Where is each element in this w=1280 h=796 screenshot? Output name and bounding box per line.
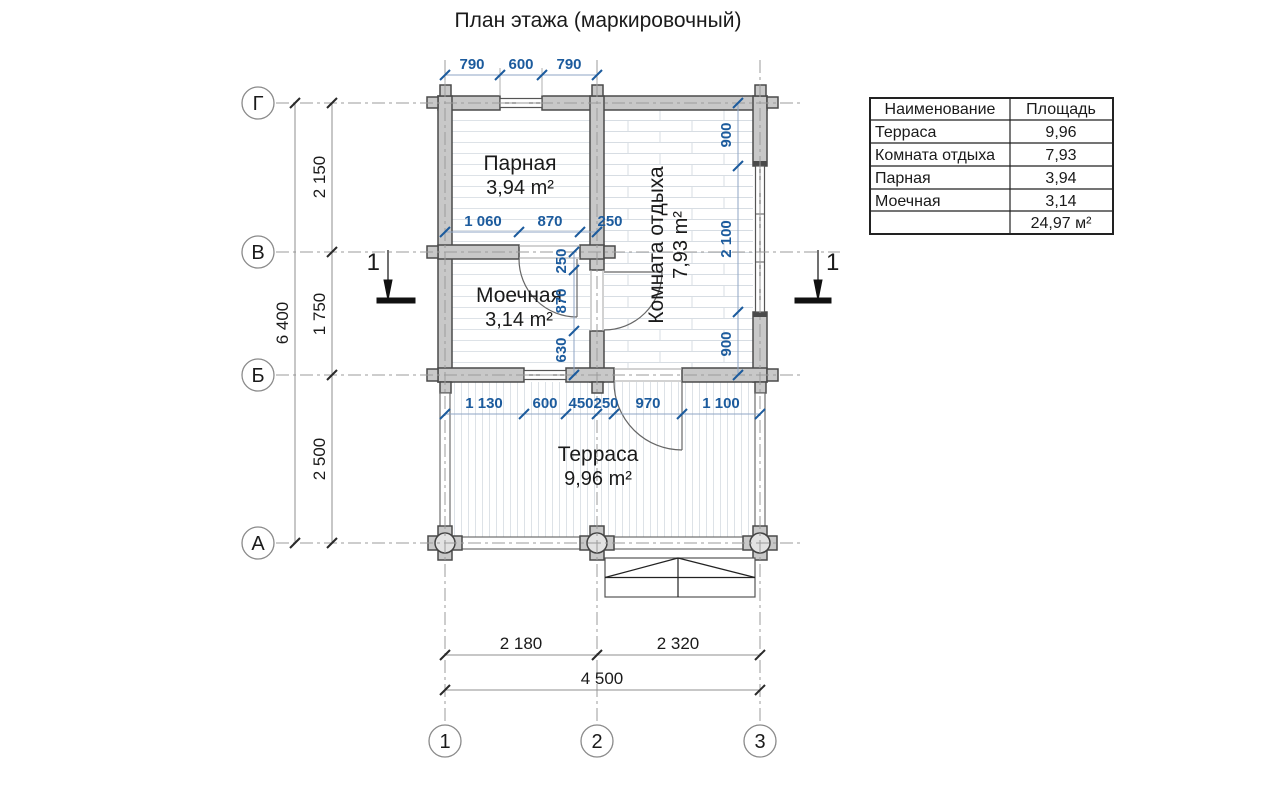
- room-area-komnata: 7,93 m²: [670, 211, 692, 279]
- dim-value: 1 130: [465, 395, 503, 412]
- table-cell-area: 9,96: [1045, 124, 1076, 141]
- table-cell-name: Терраса: [875, 124, 936, 141]
- axis-col-label: 3: [754, 731, 765, 753]
- dim-value: 1 750: [310, 293, 329, 336]
- axis-col-label: 2: [591, 731, 602, 753]
- table-cell-area: 3,94: [1045, 170, 1076, 187]
- dim-value: 2 180: [500, 634, 543, 653]
- dim-value: 900: [718, 331, 735, 356]
- table-cell-name: Моечная: [875, 193, 941, 210]
- axis-col-label: 1: [439, 731, 450, 753]
- dim-bottom-chain: 2 180 2 320: [440, 634, 765, 660]
- table-cell-name: Комната отдыха: [875, 147, 995, 164]
- axis-row-label: Г: [253, 93, 264, 115]
- dim-value: 790: [556, 56, 581, 73]
- dim-value: 2 320: [657, 634, 700, 653]
- room-area-terrasa: 9,96 m²: [564, 468, 632, 490]
- section-mark-left: 1: [367, 249, 415, 303]
- table-cell-area: 7,93: [1045, 147, 1076, 164]
- dim-value: 790: [459, 56, 484, 73]
- room-area-moechnaya: 3,14 m²: [485, 309, 553, 331]
- room-name-moechnaya: Моечная: [476, 284, 562, 307]
- section-label: 1: [367, 249, 380, 276]
- dim-value: 250: [553, 248, 570, 273]
- dim-value: 600: [532, 395, 557, 412]
- dim-value: 630: [553, 337, 570, 362]
- section-mark-right: 1: [795, 249, 839, 303]
- table-header-area: Площадь: [1026, 101, 1096, 118]
- room-name-terrasa: Терраса: [558, 443, 639, 466]
- areas-table: Наименование Площадь Терраса 9,96 Комнат…: [870, 98, 1113, 234]
- dim-value: 6 400: [273, 302, 292, 345]
- table-header-name: Наименование: [885, 101, 996, 118]
- dim-value: 2 100: [718, 220, 735, 258]
- dim-value: 1 100: [702, 395, 740, 412]
- dim-left-overall: 6 400: [273, 98, 300, 548]
- dim-bottom-overall: 4 500: [440, 669, 765, 695]
- dim-value: 900: [718, 122, 735, 147]
- axis-row-label: Б: [251, 365, 264, 387]
- dim-value: 250: [597, 213, 622, 230]
- dim-value: 450: [568, 395, 593, 412]
- dim-value: 970: [635, 395, 660, 412]
- dim-value: 250: [593, 395, 618, 412]
- room-name-parnaya: Парная: [483, 152, 556, 175]
- dim-value: 870: [537, 213, 562, 230]
- dim-value: 600: [508, 56, 533, 73]
- dim-value: 2 150: [310, 156, 329, 199]
- dim-left-chain: 2 150 1 750 2 500: [310, 98, 337, 548]
- axis-row-label: А: [251, 533, 265, 555]
- dim-top-chain: 790 600 790: [440, 56, 602, 96]
- table-total-area: 24,97 м²: [1031, 215, 1092, 232]
- floor-plan-page: План этажа (маркировочный): [0, 0, 1280, 796]
- dim-value: 2 500: [310, 438, 329, 481]
- table-cell-area: 3,14: [1045, 193, 1076, 210]
- entrance-steps: [605, 558, 755, 597]
- axis-row-label: В: [251, 242, 264, 264]
- dim-value: 870: [553, 288, 570, 313]
- page-title: План этажа (маркировочный): [455, 9, 742, 32]
- room-name-komnata: Комната отдыха: [645, 166, 668, 324]
- floor-plan-drawing: План этажа (маркировочный): [0, 0, 1280, 796]
- dim-value: 4 500: [581, 669, 624, 688]
- dim-value: 1 060: [464, 213, 502, 230]
- table-cell-name: Парная: [875, 170, 931, 187]
- section-label: 1: [826, 249, 839, 276]
- room-area-parnaya: 3,94 m²: [486, 177, 554, 199]
